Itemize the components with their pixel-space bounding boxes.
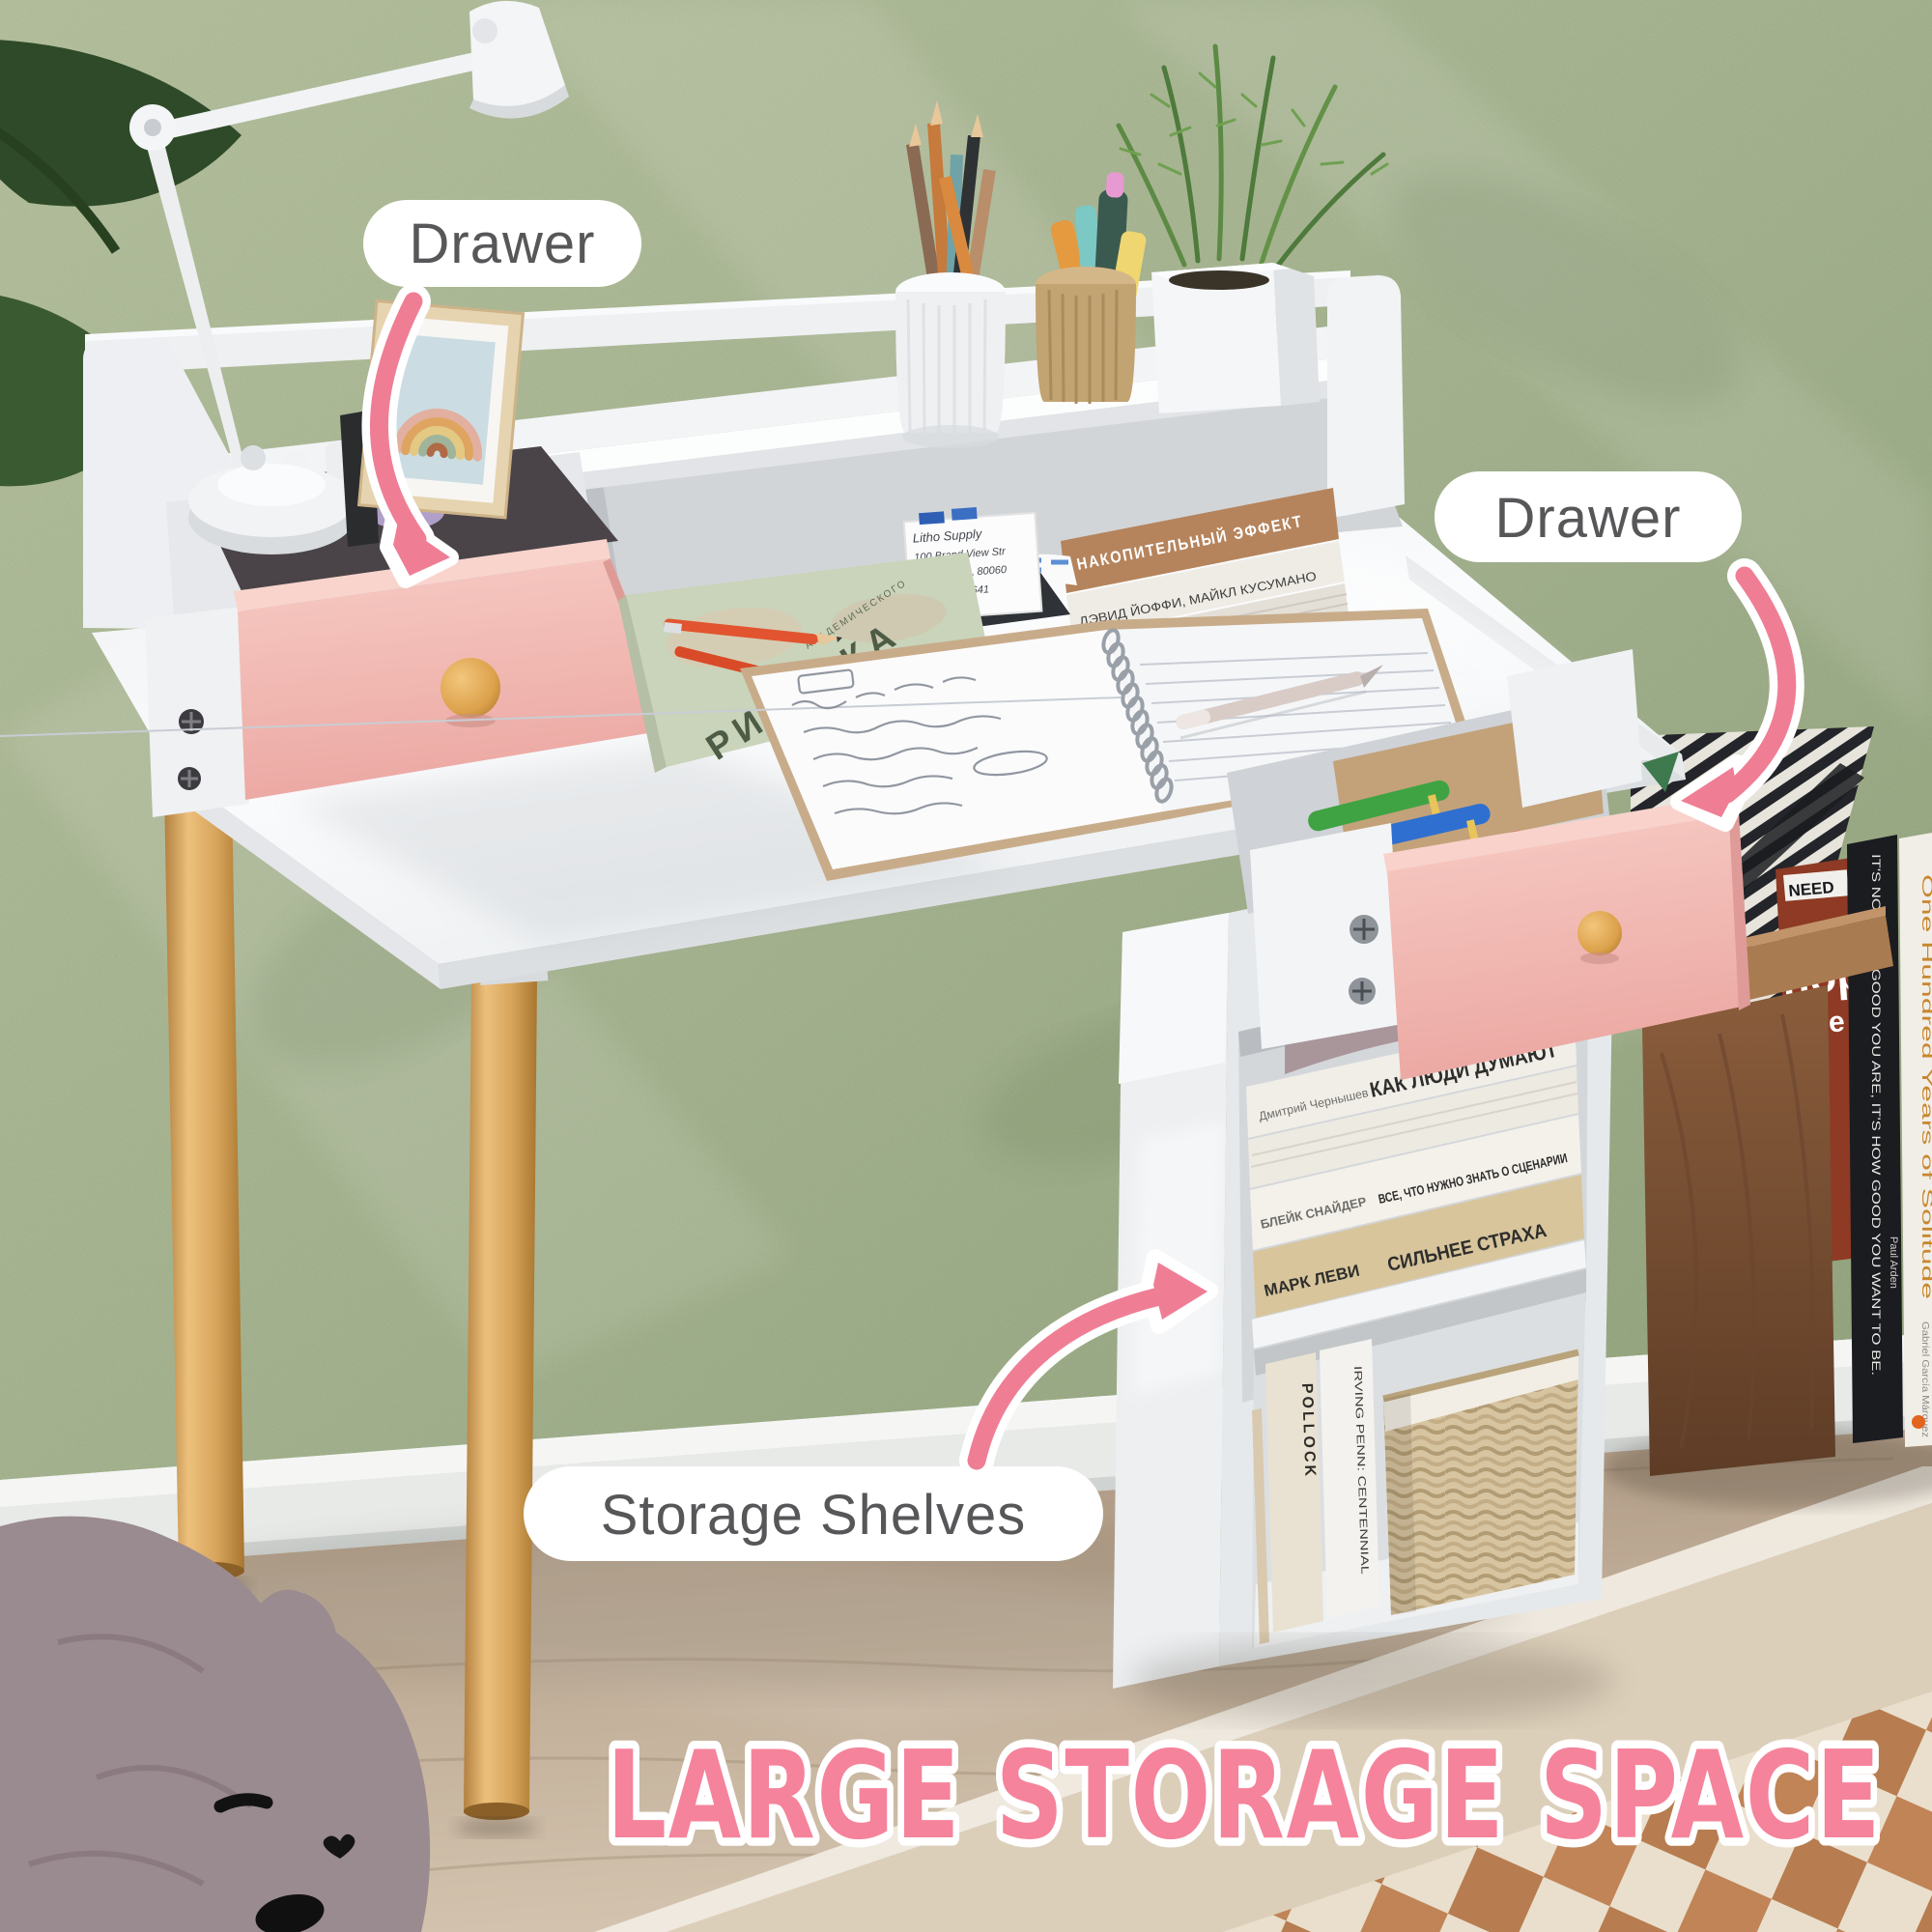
- novel-title: One Hundred Years of Solitude: [1918, 874, 1932, 1299]
- callout-drawer-left-label: Drawer: [410, 213, 596, 275]
- book-pollock-title: POLLOCK: [1298, 1383, 1318, 1480]
- left-drawer-knob: [440, 658, 500, 718]
- bear-eye: [220, 1800, 267, 1806]
- black-book-author: Paul Arden: [1888, 1236, 1899, 1289]
- book-pollock: POLLOCK: [1265, 1352, 1323, 1633]
- callout-drawer-right-label: Drawer: [1495, 487, 1682, 550]
- wicker-basket: [1383, 1352, 1578, 1615]
- callout-drawer-right: Drawer: [1435, 471, 1742, 562]
- hutch-right-panel: [1327, 275, 1405, 518]
- right-drawer-knob: [1577, 911, 1622, 955]
- product-scene: NEED nop ative IT'S NOT HOW GOOD YOU ARE…: [0, 0, 1932, 1932]
- book-irving-penn: IRVING PENN: CENTENNIAL: [1320, 1339, 1379, 1619]
- callout-storage-shelves-label: Storage Shelves: [601, 1484, 1027, 1547]
- book-solitude: One Hundred Years of Solitude Gabriel Ga…: [1899, 833, 1932, 1447]
- headline: LARGE STORAGE SPACE: [607, 1724, 1882, 1866]
- callout-storage-shelves: Storage Shelves: [524, 1466, 1103, 1561]
- callout-drawer-left: Drawer: [363, 200, 641, 287]
